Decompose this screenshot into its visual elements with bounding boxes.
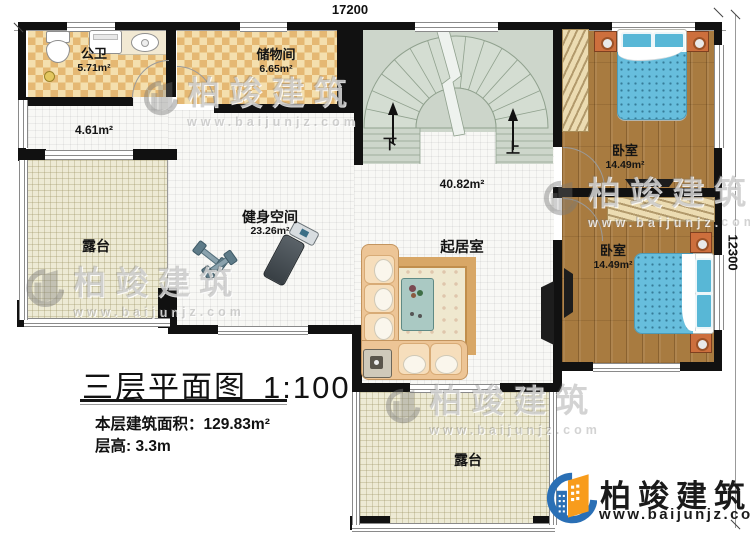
stairs-down-label: 下 <box>376 136 404 152</box>
title-underline <box>80 399 287 402</box>
top-dimension-label: 17200 <box>316 2 384 17</box>
wall <box>562 188 722 197</box>
floor-plan-canvas: 公卫 5.71m² 储物间 6.65m² 4.61m² 健身空间 23.26m²… <box>0 0 750 537</box>
brand-url: www.baijunjz.com <box>599 506 750 523</box>
terrace-door <box>410 384 500 393</box>
right-dimension-label: 12300 <box>726 222 741 284</box>
nightstand <box>690 232 712 253</box>
wall <box>553 22 562 147</box>
throw-pillow <box>403 355 426 374</box>
wall <box>337 30 363 113</box>
terrace-left-railing <box>24 318 170 327</box>
nightstand <box>594 31 617 52</box>
window <box>218 326 308 335</box>
tv <box>564 268 573 318</box>
throw-pillow <box>374 259 393 282</box>
wall <box>133 149 177 160</box>
terrace-bottom-label: 露台 <box>438 452 498 468</box>
nightstand <box>686 31 709 52</box>
throw-pillow <box>435 355 458 374</box>
window <box>714 45 724 148</box>
window <box>714 255 724 330</box>
wall <box>562 362 593 371</box>
terrace-bottom-railing <box>352 392 360 525</box>
wall <box>714 330 722 371</box>
bathroom-label: 公卫 5.71m² <box>58 47 130 74</box>
wall <box>553 187 562 198</box>
wardrobe <box>562 29 589 132</box>
wall <box>115 22 240 30</box>
terrace-left-label: 露台 <box>66 238 126 254</box>
wall <box>714 22 722 45</box>
living-label: 起居室 <box>426 240 498 257</box>
wall <box>354 104 363 165</box>
nightstand <box>690 332 712 353</box>
bed-pillow <box>695 258 713 294</box>
dimension-tick <box>714 8 724 18</box>
terrace-left-railing <box>19 160 28 320</box>
gym-label: 健身空间 23.26m² <box>222 209 318 237</box>
throw-pillow <box>374 317 393 340</box>
window <box>593 363 680 372</box>
bedroom2-label: 卧室 14.49m² <box>578 244 648 271</box>
wall <box>714 148 722 255</box>
wardrobe <box>607 197 715 222</box>
window <box>240 22 287 32</box>
bed-pillow <box>695 293 713 329</box>
wall <box>18 22 26 100</box>
window <box>45 150 133 160</box>
hallway-area-label: 4.61m² <box>62 124 126 138</box>
floor-area-line: 本层建筑面积：129.83m² <box>95 412 270 434</box>
wall <box>553 240 562 392</box>
tv <box>625 179 675 187</box>
wall <box>308 325 362 334</box>
throw-pillow <box>374 288 393 311</box>
coffee-table <box>401 278 434 331</box>
wall <box>20 97 133 106</box>
sink <box>131 33 159 52</box>
living-area-label: 40.82m² <box>426 178 498 192</box>
wall <box>168 325 218 334</box>
bedroom1-label: 卧室 14.49m² <box>590 144 660 171</box>
wall <box>20 149 46 160</box>
tv <box>541 281 554 345</box>
side-table <box>363 349 392 378</box>
terrace-left-edge <box>167 160 168 290</box>
wall <box>352 383 410 392</box>
floor-drain <box>44 71 55 82</box>
window <box>18 100 28 148</box>
bed-sheet-fold <box>682 254 696 331</box>
floor-height-line: 层高: 3.3m <box>95 434 171 456</box>
terrace-bottom-railing <box>352 523 555 532</box>
window <box>415 22 498 32</box>
title-underline-thin <box>80 404 287 405</box>
wall <box>287 22 415 30</box>
stairs-up-label: 上 <box>499 140 527 156</box>
brand-logo-icon <box>541 466 597 530</box>
storage-label: 储物间 6.65m² <box>240 48 312 75</box>
bed-blanket <box>617 52 687 120</box>
